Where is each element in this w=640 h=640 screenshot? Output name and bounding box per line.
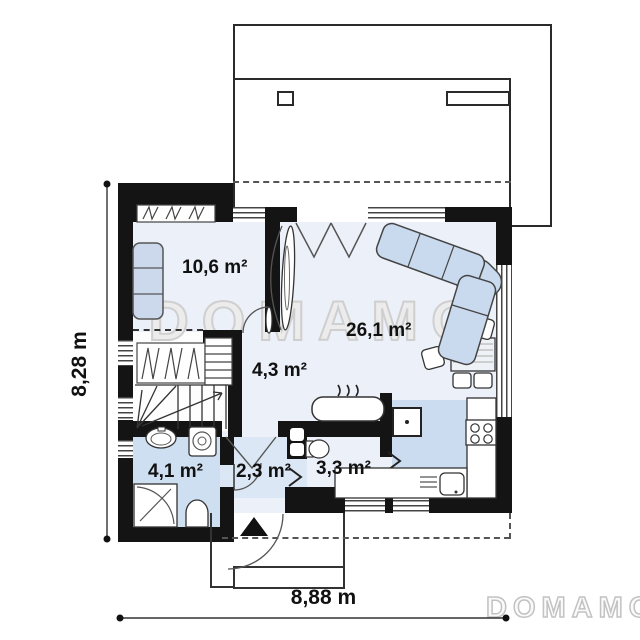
wall-bottom-right <box>429 498 512 513</box>
wall-entrance-right-pier <box>285 487 345 513</box>
roof-inner-line-h <box>233 78 511 80</box>
room-label-bedroom: 10,6 m² <box>182 257 247 279</box>
wall-bathroom-bottom <box>118 527 222 542</box>
wall-bottom-pier <box>385 495 393 513</box>
floor-plan-canvas: DOMAMO DOMAMO <box>0 0 640 640</box>
wall-pier-wardrobe-left <box>118 205 137 222</box>
room-label-utility: 3,3 m² <box>316 458 371 480</box>
roof-outline-right <box>550 24 552 227</box>
room-label-bathroom: 4,1 m² <box>148 461 203 483</box>
window-bottom-1 <box>345 495 385 513</box>
floor-kitchen <box>392 400 467 470</box>
window-left-3 <box>118 440 133 458</box>
roof-outline-bottom <box>509 225 552 227</box>
wall-pier-top-center <box>263 207 297 222</box>
wall-pier-wardrobe-right <box>215 205 233 222</box>
eaves-dashed-bottom <box>222 537 510 539</box>
entrance-door-icon <box>228 514 283 569</box>
window-left-2 <box>118 397 133 420</box>
wall-closet-hall <box>228 330 242 437</box>
wall-bathroom-right-top <box>220 437 234 465</box>
dimension-label-depth: 8,28 m <box>68 304 92 424</box>
brand-logo: DOMAMO <box>486 592 640 625</box>
window-right-large <box>496 265 512 417</box>
roof-outline-left <box>233 24 235 207</box>
window-top-2 <box>368 207 445 222</box>
wall-kitchen-divider <box>380 393 392 457</box>
room-label-entrance: 2,3 m² <box>236 461 291 483</box>
eaves-dashed-top <box>233 181 511 183</box>
window-top-1 <box>233 207 265 222</box>
roof-outline-top <box>233 24 552 26</box>
bedroom-dashed-line <box>133 329 203 331</box>
wall-bathroom-right-bottom <box>220 487 234 542</box>
window-bottom-2 <box>393 495 429 513</box>
room-label-living: 26,1 m² <box>346 320 411 342</box>
porch-left-edge <box>210 513 212 588</box>
wall-bedroom-living <box>265 222 280 332</box>
dimension-label-width: 8,88 m <box>276 586 371 610</box>
eaves-dashed-right <box>509 513 511 539</box>
wardrobe-top-icon <box>137 205 215 222</box>
wall-under-stairs <box>118 421 222 437</box>
chimney-small <box>277 91 294 106</box>
room-label-hall: 4,3 m² <box>252 360 307 382</box>
watermark-center: DOMAMO <box>132 288 504 353</box>
chimney-long <box>446 91 510 106</box>
wall-top-bedroom <box>118 183 233 205</box>
washer-dryer-block <box>287 425 307 459</box>
wall-right-upper <box>496 207 512 265</box>
window-left-1 <box>118 340 133 366</box>
